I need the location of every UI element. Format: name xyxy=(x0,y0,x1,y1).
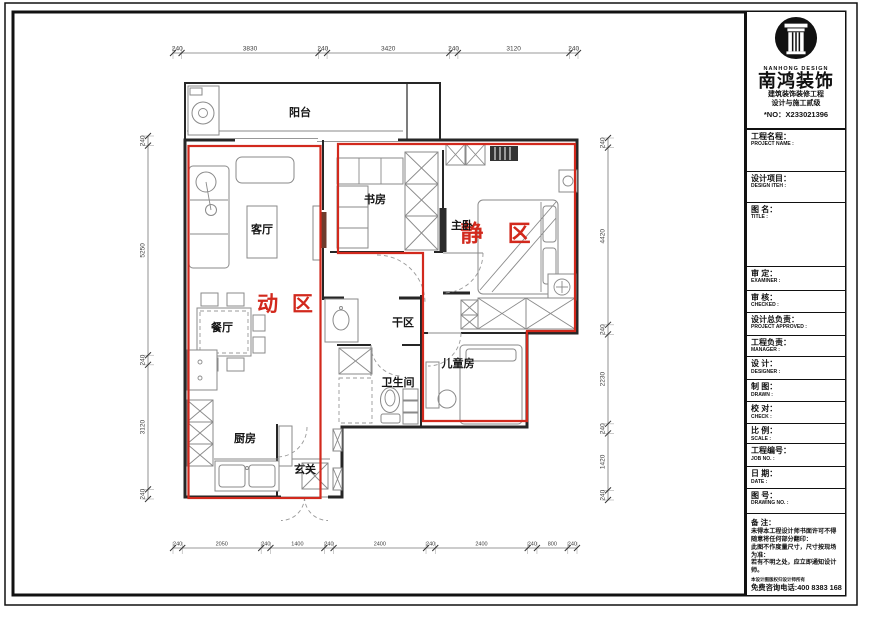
dim-label-bottom: 2400 xyxy=(374,542,386,548)
room-label-living: 客厅 xyxy=(250,222,273,236)
dim-label-top: 3830 xyxy=(243,46,258,53)
dim-label-right: 4420 xyxy=(600,229,607,244)
zone-label-active: 动 区 xyxy=(257,293,317,316)
row-label-cn: 比 例： xyxy=(751,426,842,435)
dim-label-top: 3120 xyxy=(506,46,521,53)
titleblock: NANHONG DESIGN 南鸿装饰 建筑装饰装修工程 设计与施工贰级 *NO… xyxy=(744,12,845,595)
row-label-cn: 工程负责： xyxy=(751,338,842,347)
row-label-cn: 设计项目： xyxy=(751,174,842,183)
dim-label-top: 240 xyxy=(568,46,579,53)
corridor-door-arc xyxy=(377,255,425,303)
desk-chair xyxy=(438,390,456,408)
titleblock-row-drawing-no: 图 号： DRAWING NO. : xyxy=(747,489,845,514)
row-label-en: JOB NO. : xyxy=(751,456,842,462)
room-label-bathroom: 卫生间 xyxy=(382,375,415,389)
row-label-en: CHECK : xyxy=(751,414,842,420)
dining-chair xyxy=(227,358,244,371)
company-cert-line2: 设计与施工贰级 xyxy=(747,100,845,109)
shoe-cabinet xyxy=(279,426,292,466)
dim-label-right: 240 xyxy=(600,423,607,434)
dining-chair xyxy=(201,293,218,306)
company-license-no: *NO：X233021396 xyxy=(747,109,845,120)
row-label-en: SCALE : xyxy=(751,436,842,442)
remarks-phone: 免费咨询电话:400 8383 168 xyxy=(751,583,842,593)
sofa-chaise xyxy=(236,157,294,183)
shower-area xyxy=(339,378,372,423)
dim-label-bottom: 2400 xyxy=(475,542,487,548)
titleblock-row-checked: 审 核： CHECKED : xyxy=(747,291,845,313)
room-label-entry: 玄关 xyxy=(294,462,316,476)
sheet-borders xyxy=(5,3,857,605)
dim-label-bottom: 240 xyxy=(261,542,270,548)
row-label-cn: 工程名程： xyxy=(751,132,842,141)
titleblock-row-designer: 设 计： DESIGNER : xyxy=(747,357,845,380)
row-label-en: DESIGNER : xyxy=(751,369,842,375)
dim-label-right: 1420 xyxy=(600,454,607,469)
dim-label-left: 240 xyxy=(140,354,147,365)
row-label-cn: 日 期： xyxy=(751,469,842,478)
dining-chair xyxy=(253,337,265,353)
room-label-balcony: 阳台 xyxy=(289,105,311,119)
row-label-cn: 图 号： xyxy=(751,491,842,500)
dim-label-right: 240 xyxy=(600,324,607,335)
drawing-sheet: 动 区 静 区 阳台 客厅 餐厅 厨房 玄关 干区 卫生间 书房 主卧 儿童房 … xyxy=(0,0,895,633)
row-label-en: DRAWING NO. : xyxy=(751,500,842,506)
dim-label-top: 240 xyxy=(172,46,183,53)
titleblock-row-design-item: 设计项目： DESIGN ITEH : xyxy=(747,172,845,203)
kids-bed xyxy=(460,345,522,424)
dining-chair xyxy=(253,315,265,331)
row-label-cn: 校 对： xyxy=(751,404,842,413)
room-label-kids: 儿童房 xyxy=(441,356,475,370)
dim-label-left: 5250 xyxy=(140,243,147,258)
row-label-en: CHECKED : xyxy=(751,302,842,308)
bath-door-arc xyxy=(371,345,402,376)
vent-grille xyxy=(490,146,518,161)
entry-door-arc xyxy=(305,497,329,521)
row-label-en: PROJECT NAME : xyxy=(751,141,842,147)
room-label-kitchen: 厨房 xyxy=(234,431,256,445)
room-label-dining: 餐厅 xyxy=(210,320,233,334)
fridge xyxy=(187,350,217,390)
study-cabinet xyxy=(337,158,403,184)
row-label-cn: 工程编号： xyxy=(751,446,842,455)
company-logo-block: NANHONG DESIGN 南鸿装饰 建筑装饰装修工程 设计与施工贰级 *NO… xyxy=(747,12,845,130)
row-label-cn: 设计总负责： xyxy=(751,315,842,324)
titleblock-row-drawn: 制 图： DRAWN : xyxy=(747,380,845,402)
row-label-en: MANAGER : xyxy=(751,347,842,353)
dim-label-top: 3420 xyxy=(381,46,396,53)
dim-label-bottom: 240 xyxy=(528,542,537,548)
room-label-dry-area: 干区 xyxy=(392,316,414,329)
room-label-study: 书房 xyxy=(364,192,386,206)
dim-label-top: 240 xyxy=(448,46,459,53)
titleblock-row-examiner: 审 定： EXAMINER : xyxy=(747,267,845,291)
row-label-en: DESIGN ITEH : xyxy=(751,183,842,189)
row-label-cn: 审 定： xyxy=(751,269,842,278)
dim-label-bottom: 240 xyxy=(568,542,577,548)
master-door-arc xyxy=(443,253,483,293)
dim-label-left: 3120 xyxy=(140,420,147,435)
company-logo-icon xyxy=(774,16,818,60)
dim-label-bottom: 240 xyxy=(426,542,435,548)
dining-chair xyxy=(227,293,244,306)
titleblock-row-project-approved: 设计总负责： PROJECT APPROVED : xyxy=(747,313,845,336)
dim-label-bottom: 240 xyxy=(173,542,182,548)
dim-label-left: 240 xyxy=(140,135,147,146)
titleblock-row-scale: 比 例： SCALE : xyxy=(747,424,845,444)
titleblock-row-check: 校 对： CHECK : xyxy=(747,402,845,424)
row-label-en: EXAMINER : xyxy=(751,278,842,284)
dim-label-right: 2230 xyxy=(600,372,607,387)
entry-door-arc xyxy=(281,497,305,521)
titleblock-row-project-name: 工程名程： PROJECT NAME : xyxy=(747,130,845,172)
company-name-cn: 南鸿装饰 xyxy=(747,72,845,91)
row-label-cn: 图 名： xyxy=(751,205,842,214)
dim-label-bottom: 800 xyxy=(548,542,557,548)
row-label-en: PROJECT APPROVED : xyxy=(751,324,842,330)
row-label-en: TITLE : xyxy=(751,214,842,220)
titleblock-row-manager: 工程负责： MANAGER : xyxy=(747,336,845,358)
row-label-en: DATE : xyxy=(751,479,842,485)
dim-label-right: 240 xyxy=(600,137,607,148)
row-label-cn: 审 核： xyxy=(751,293,842,302)
toilet xyxy=(381,388,400,413)
titleblock-remarks: 备 注： 未得本工程设计师书面许可不得 随意将任何部分翻印： 此图不作度量尺寸，… xyxy=(747,514,845,595)
dim-label-bottom: 1400 xyxy=(291,542,303,548)
dim-label-right: 240 xyxy=(600,489,607,500)
vanity-counter xyxy=(325,299,358,342)
titleblock-row-title: 图 名： TITLE : xyxy=(747,203,845,267)
room-label-master: 主卧 xyxy=(451,218,473,232)
remarks-body: 未得本工程设计师书面许可不得 随意将任何部分翻印： 此图不作度量尺寸，尺寸按现场… xyxy=(751,528,842,575)
row-label-en: DRAWN : xyxy=(751,392,842,398)
dim-label-left: 240 xyxy=(140,488,147,499)
company-cert-line1: 建筑装饰装修工程 xyxy=(747,91,845,100)
row-label-cn: 设 计： xyxy=(751,359,842,368)
sofa xyxy=(189,166,229,268)
titleblock-row-date: 日 期： DATE : xyxy=(747,467,845,489)
row-label-cn: 制 图： xyxy=(751,382,842,391)
dim-label-top: 240 xyxy=(317,46,328,53)
remarks-title: 备 注： xyxy=(751,517,842,528)
dim-label-bottom: 240 xyxy=(324,542,333,548)
dim-label-bottom: 2050 xyxy=(216,542,228,548)
kids-desk xyxy=(426,362,439,408)
titleblock-row-job-no: 工程编号： JOB NO. : xyxy=(747,444,845,467)
